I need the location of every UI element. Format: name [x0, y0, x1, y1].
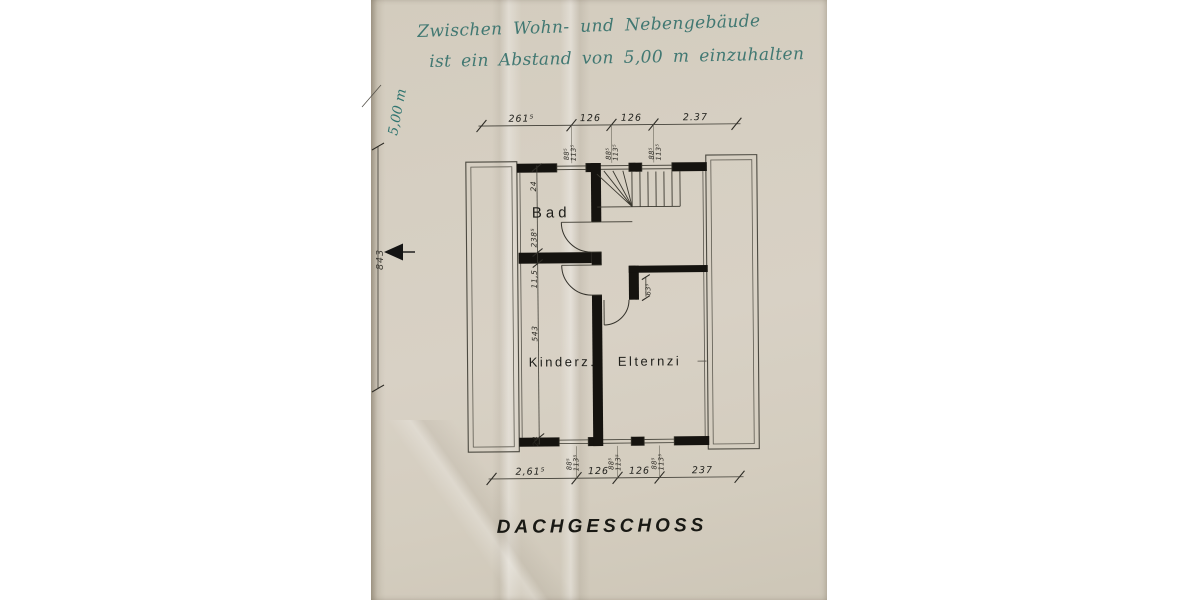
margin-annotations: 5,00 m 843	[362, 85, 415, 392]
window-label: 113⁵	[570, 144, 578, 161]
door-kinderzimmer	[562, 265, 592, 295]
dim-top-2: 126	[580, 113, 601, 124]
window-label: 113⁵	[614, 454, 622, 471]
pencil-line	[362, 85, 381, 107]
door-bad	[561, 222, 591, 252]
roof-strip-left	[466, 162, 520, 452]
window-label: 113⁵	[612, 144, 620, 161]
dim-left-3: 11,5	[530, 269, 539, 288]
dim-top-3: 126	[621, 113, 642, 124]
windows-bottom	[559, 436, 674, 446]
north-arrow-icon	[384, 244, 415, 261]
dim-bottom-1: 2,61⁵	[515, 466, 545, 477]
window-label: 113⁵	[657, 454, 665, 471]
dim-left-5: 24	[531, 436, 540, 447]
roof-strip-right	[706, 155, 760, 449]
door-elternzimmer	[604, 300, 629, 325]
distance-note: 5,00 m	[385, 87, 410, 136]
stairs	[597, 170, 680, 222]
room-label-elternzimmer: Elternzi	[618, 353, 681, 369]
window-labels-bottom: 88⁵ 113⁵ 88⁵ 113⁵ 88⁵ 113⁵	[565, 454, 665, 472]
dim-bottom-2: 126	[588, 466, 609, 477]
window-label: 113⁵	[655, 144, 663, 161]
dim-left-1: 24	[529, 181, 538, 192]
dim-top-1: 261⁵	[508, 114, 534, 125]
dim-left-2: 238⁵	[529, 228, 538, 248]
dim-bottom-3: 126	[629, 466, 650, 477]
plan-title: DACHGESCHOSS	[497, 515, 708, 538]
niche-dimension-label: 63⁵	[644, 283, 652, 295]
floor-plan-drawing: 5,00 m 843	[0, 0, 1200, 600]
dim-bottom-4: 237	[692, 465, 713, 476]
dim-left-4: 543	[530, 325, 539, 341]
windows-top	[557, 162, 672, 172]
dim-top-4: 2.37	[683, 112, 708, 123]
niche-dimension: 63⁵	[642, 275, 653, 301]
window-label: 113⁵	[572, 454, 580, 471]
room-label-bad: Bad	[532, 204, 571, 221]
room-label-kinderzimmer: Kinderz.	[529, 354, 597, 370]
window-labels-top: 88⁵ 113⁵ 88⁵ 113⁵ 88⁵ 113⁵	[563, 144, 663, 162]
scanned-floorplan-photo: Zwischen Wohn- und Nebengebäude ist ein …	[0, 0, 1200, 600]
